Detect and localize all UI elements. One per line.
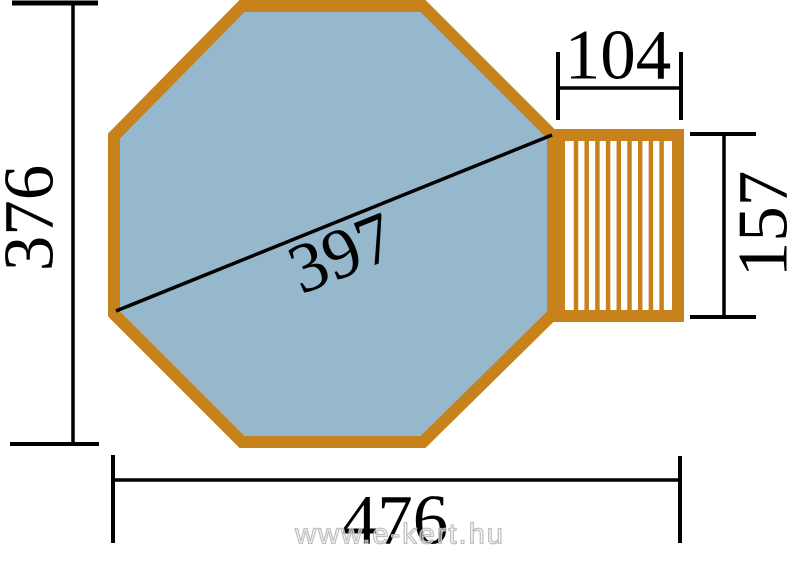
deck-height-dimension-label: 157	[729, 171, 800, 278]
deck-planks	[576, 141, 662, 310]
height-dimension-label: 376	[0, 165, 66, 272]
pool-plan-drawing	[0, 0, 800, 562]
site-watermark: www.e-kert.hu	[295, 519, 505, 552]
deck-width-dimension-label: 104	[565, 21, 672, 92]
pool-plan-canvas: 376 397 104 157 476 www.e-kert.hu	[0, 0, 800, 562]
